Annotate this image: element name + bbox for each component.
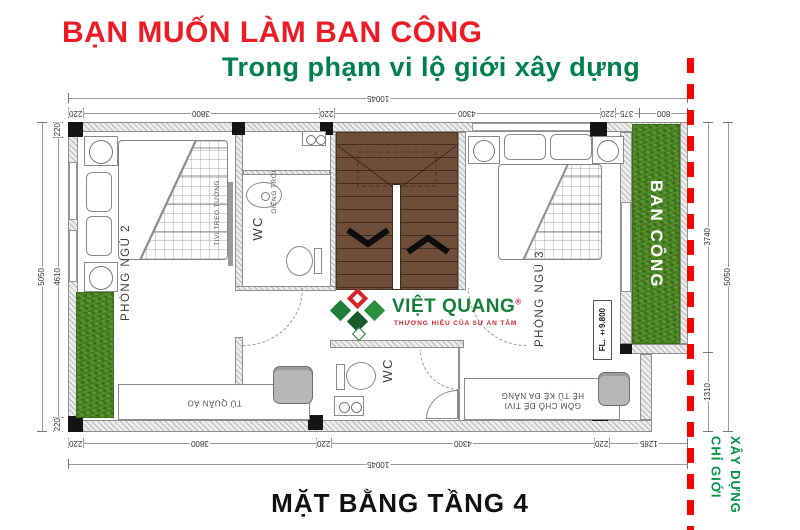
bedroom3-label: PHÒNG NGỦ 3 — [534, 250, 546, 347]
nightstand — [468, 136, 500, 164]
dim-segment: 800 — [639, 107, 689, 119]
door-arc — [420, 350, 460, 390]
tv-unit — [228, 182, 233, 266]
basin — [351, 402, 362, 413]
dim-segment: 5050 — [36, 122, 48, 432]
dim-segment: 220 — [594, 437, 609, 449]
fixture-knob — [306, 135, 316, 145]
wall-lower-right — [640, 354, 652, 420]
shelf-label: GỒM CHỖ ĐỂ TIVI HỆ TỦ KỆ ĐA NĂNG — [501, 389, 584, 410]
desk-chair — [273, 366, 313, 404]
dim-top-segments: 220 3800 220 4300 220 375 800 — [68, 107, 688, 119]
dim-segment: 220 — [68, 107, 83, 119]
shelf-unit: GỒM CHỖ ĐỂ TIVI HỆ TỦ KỆ ĐA NĂNG — [464, 378, 620, 420]
column-block — [308, 415, 323, 430]
dim-bottom-overall: 10045 — [68, 458, 688, 470]
dim-segment: 220 — [600, 107, 615, 119]
dim-segment: 4610 — [52, 137, 64, 416]
lightwell-label: GIẾNG TRỜI — [271, 170, 278, 214]
balcony-grass: BAN CÔNG — [632, 124, 680, 344]
balcony-label: BAN CÔNG — [646, 180, 666, 289]
diamond-red — [347, 288, 368, 309]
floor-level-tag: FL. ±9.800 — [593, 300, 612, 360]
dim-segment: 375 — [615, 107, 638, 119]
toilet-tank — [314, 248, 322, 274]
dim-segment: 220 — [52, 417, 64, 432]
drain — [261, 192, 270, 201]
window-left-1 — [69, 162, 77, 220]
dim-segment: 3800 — [83, 437, 315, 449]
dim-segment: 220 — [319, 107, 334, 119]
bed-bedroom2 — [118, 140, 228, 260]
basin — [339, 402, 350, 413]
wall-partition-stairs-bedroom3 — [458, 132, 466, 290]
stairs-down-arrow-icon — [348, 230, 388, 244]
dim-left-segments: 220 4610 220 — [52, 122, 64, 432]
stairs-divider — [392, 184, 401, 290]
wall-lightwell-wc — [243, 170, 330, 175]
dim-segment: 1285 — [609, 437, 688, 449]
dim-segment: 4300 — [334, 107, 600, 119]
door-arc — [243, 288, 303, 346]
column-block — [232, 122, 245, 135]
headline: BẠN MUỐN LÀM BAN CÔNG — [62, 16, 482, 50]
building-boundary-line — [687, 58, 694, 530]
bed-pillow — [504, 134, 546, 160]
window-left-2 — [69, 230, 77, 282]
toilet-tank — [336, 364, 345, 390]
dim-segment: 3800 — [83, 107, 318, 119]
blanket-fold — [119, 141, 227, 259]
wc-lower-label: WC — [380, 358, 395, 383]
wall-hall-lowerwc — [330, 340, 464, 348]
window-balcony-door — [621, 202, 631, 292]
blanket-fold — [499, 165, 601, 259]
nightstand — [592, 136, 624, 164]
bedroom2-label: PHÒNG NGỦ 2 — [120, 224, 132, 321]
dim-right-segments: 3740 1310 — [702, 122, 714, 432]
nightstand — [84, 262, 118, 292]
brand-name: VIỆT QUANG® — [392, 296, 522, 318]
brand-tagline: THƯƠNG HIỆU CỦA SỰ AN TÂM — [394, 320, 517, 327]
bed-pillow — [86, 216, 112, 256]
registered-mark: ® — [515, 298, 521, 307]
lamp-icon — [473, 140, 495, 162]
lamp-icon — [89, 140, 113, 164]
logo-diamond-icon — [328, 290, 388, 340]
caption-title: MẶT BẰNG TẦNG 4 — [0, 488, 800, 519]
window-top-bedroom3 — [472, 123, 592, 131]
dim-segment: 220 — [68, 437, 83, 449]
dim-segment: 1310 — [702, 352, 714, 432]
desk-chair — [598, 372, 630, 406]
diamond-green-left — [330, 300, 351, 321]
wall-bottom — [68, 420, 652, 432]
fixture-knob — [316, 135, 326, 145]
lightwell-fixture — [302, 131, 326, 146]
subheadline: Trong phạm vi lộ giới xây dựng — [222, 52, 640, 83]
toilet-bowl — [286, 246, 313, 276]
column-block — [620, 344, 632, 354]
corner-shower — [426, 390, 458, 419]
wc-upper-label: WC — [250, 216, 265, 241]
floor-level-value: FL. ±9.800 — [598, 308, 607, 351]
tv-wall-label: TIVI TREO TƯỜNG — [214, 180, 221, 246]
dim-right-overall: 5050 — [722, 122, 734, 432]
stairs-up-arrow-icon — [408, 238, 448, 252]
floor-plan: BAN CÔNG — [68, 122, 688, 432]
sink-cabinet — [334, 396, 364, 416]
dim-segment: 3740 — [702, 122, 714, 352]
column-block — [68, 416, 83, 432]
wardrobe-label: TỦ QUẦN ÁO — [187, 397, 242, 407]
dim-segment: 220 — [52, 122, 64, 137]
bed-pillow — [550, 134, 592, 160]
brand-logo: VIỆT QUANG® THƯƠNG HIỆU CỦA SỰ AN TÂM — [328, 290, 518, 340]
nightstand — [84, 136, 118, 166]
column-block — [68, 122, 83, 137]
dim-segment: 10045 — [68, 92, 688, 104]
column-block — [590, 122, 607, 137]
dim-segment: 220 — [316, 437, 331, 449]
wall-partition-bedroom2 — [235, 132, 243, 288]
dim-top-overall: 10045 — [68, 92, 688, 104]
lamp-icon — [89, 266, 113, 290]
bed-pillow — [86, 172, 112, 212]
stairs — [336, 132, 458, 290]
diamond-core — [353, 294, 363, 304]
bed-bedroom3 — [498, 164, 602, 260]
lamp-icon — [597, 140, 619, 162]
toilet-bowl — [346, 362, 376, 390]
floor-plan-page: BẠN MUỐN LÀM BAN CÔNG Trong phạm vi lộ g… — [0, 0, 800, 530]
planter-grass-left — [76, 292, 114, 418]
dim-segment: 5050 — [722, 122, 734, 432]
dim-segment: 4300 — [331, 437, 594, 449]
diamond-green-right — [364, 300, 385, 321]
dim-bottom-segments: 220 3800 220 4300 220 1285 — [68, 437, 688, 449]
dim-left-overall: 5050 — [36, 122, 48, 432]
dim-segment: 10045 — [68, 458, 688, 470]
